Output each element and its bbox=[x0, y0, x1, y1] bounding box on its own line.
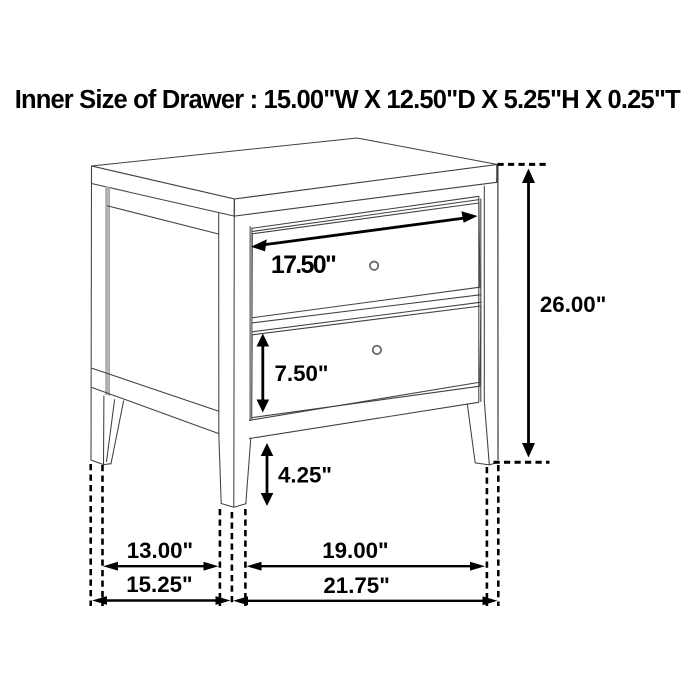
svg-text:Inner Size of Drawer : 15.00"W: Inner Size of Drawer : 15.00"W X 12.50"D… bbox=[15, 86, 681, 114]
svg-text:26.00": 26.00" bbox=[540, 292, 606, 317]
svg-text:17.50": 17.50" bbox=[271, 251, 336, 279]
svg-text:19.00": 19.00" bbox=[322, 538, 388, 563]
svg-text:15.25": 15.25" bbox=[126, 572, 192, 597]
svg-text:4.25": 4.25" bbox=[278, 463, 332, 488]
svg-text:21.75": 21.75" bbox=[323, 573, 389, 598]
svg-text:7.50": 7.50" bbox=[275, 361, 329, 386]
svg-text:13.00": 13.00" bbox=[127, 538, 193, 563]
